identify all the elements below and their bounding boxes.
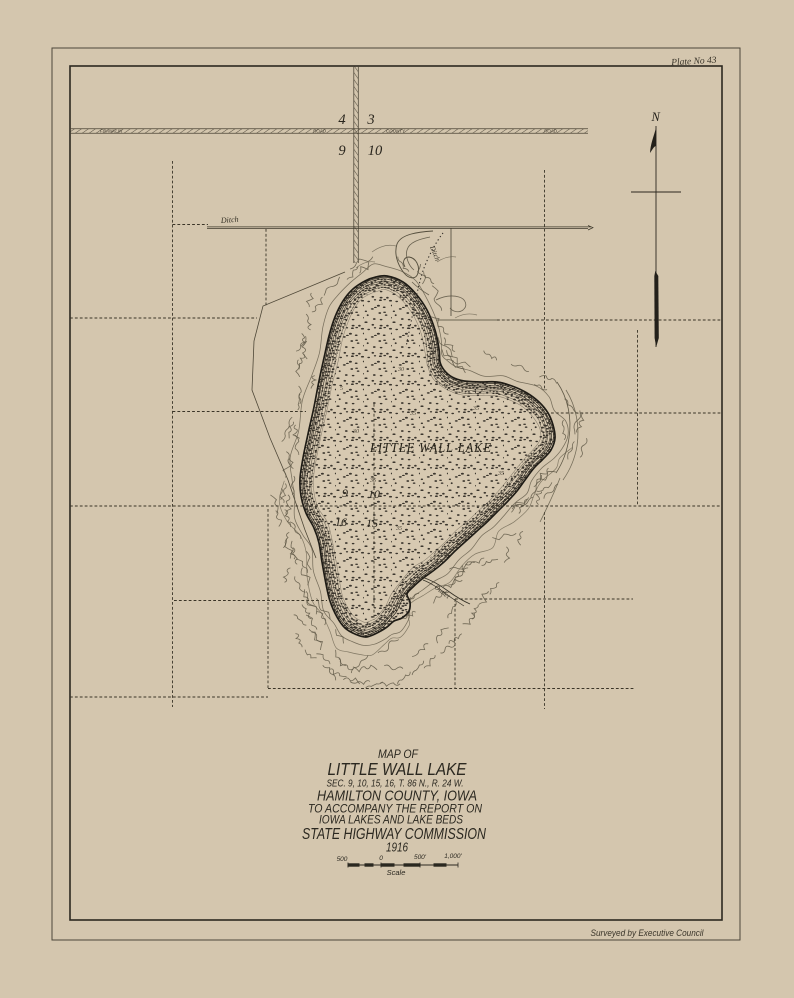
svg-text:ROAD: ROAD [544, 129, 558, 134]
svg-text:IOWA LAKES AND LAKE BEDS: IOWA LAKES AND LAKE BEDS [319, 815, 463, 827]
svg-text:COUNTY: COUNTY [386, 129, 406, 134]
svg-text:36: 36 [369, 478, 376, 484]
svg-text:ROAD: ROAD [313, 129, 327, 134]
svg-text:500': 500' [414, 854, 427, 861]
svg-text:10: 10 [368, 143, 383, 159]
svg-text:35: 35 [497, 471, 504, 477]
svg-text:5: 5 [340, 386, 343, 392]
svg-text:35: 35 [472, 406, 479, 412]
svg-text:LITTLE WALL LAKE: LITTLE WALL LAKE [369, 440, 492, 455]
svg-text:9: 9 [342, 486, 348, 500]
svg-text:HAMILTON COUNTY, IOWA: HAMILTON COUNTY, IOWA [317, 788, 477, 805]
svg-text:30: 30 [397, 367, 404, 373]
svg-text:30: 30 [352, 429, 359, 435]
svg-text:Surveyed by Executive Council: Surveyed by Executive Council [591, 928, 705, 939]
svg-text:N: N [651, 110, 661, 124]
svg-text:10: 10 [368, 487, 380, 501]
svg-text:4: 4 [338, 112, 345, 128]
svg-text:0: 0 [379, 855, 383, 862]
svg-text:500: 500 [337, 856, 348, 863]
svg-text:3: 3 [366, 112, 374, 128]
svg-text:15: 15 [366, 516, 378, 530]
svg-text:1916: 1916 [386, 840, 409, 855]
svg-text:LITTLE WALL LAKE: LITTLE WALL LAKE [328, 759, 467, 779]
svg-text:FRANKLIN: FRANKLIN [100, 129, 123, 134]
svg-text:16: 16 [335, 515, 347, 529]
svg-text:9: 9 [338, 143, 346, 159]
svg-text:35: 35 [395, 526, 402, 532]
svg-text:Ditch: Ditch [220, 215, 239, 225]
svg-text:1,000': 1,000' [444, 853, 462, 860]
svg-text:Scale: Scale [387, 868, 406, 877]
svg-text:35: 35 [409, 411, 416, 417]
